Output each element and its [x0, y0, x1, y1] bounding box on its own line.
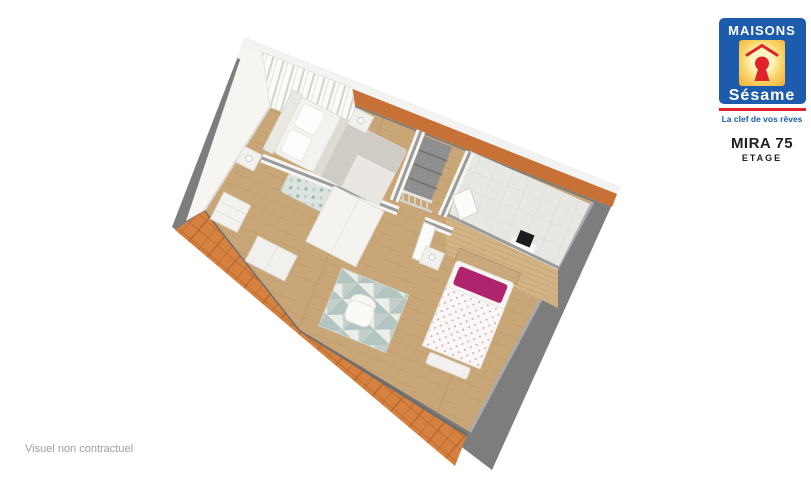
disclaimer-text: Visuel non contractuel — [25, 443, 133, 455]
page: MAISONS Sésame La clef de vos rêves MIRA… — [0, 0, 811, 480]
floorplan-3d-render — [0, 0, 811, 480]
brand-name-script: Sésame — [719, 87, 806, 104]
brand-panel: MAISONS Sésame La clef de vos rêves MIRA… — [714, 18, 810, 163]
logo-divider — [719, 108, 806, 111]
brand-name-top: MAISONS — [719, 23, 806, 38]
plan-subtitle: ETAGE — [714, 153, 810, 163]
brand-tagline: La clef de vos rêves — [714, 114, 810, 124]
plan-title: MIRA 75 — [714, 135, 810, 152]
keyhole-icon — [739, 40, 785, 86]
brand-logo: MAISONS Sésame — [719, 18, 806, 104]
keyhole-badge — [739, 40, 785, 86]
